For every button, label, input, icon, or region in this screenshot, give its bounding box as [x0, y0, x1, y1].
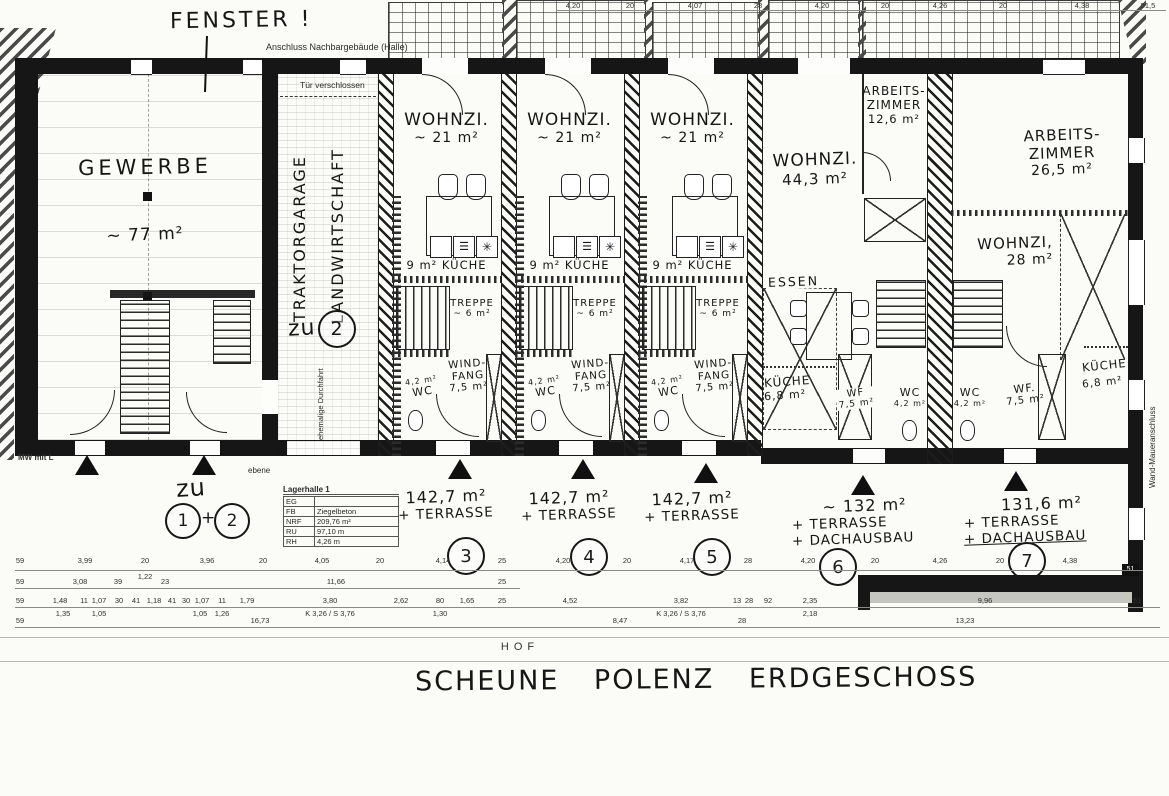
dimension-line [15, 570, 1143, 571]
dim-label: 4,20 [801, 556, 816, 565]
dim-label: 3,99 [78, 556, 93, 565]
dim-label: 20 [376, 556, 384, 565]
dim-label: 4,20 [815, 1, 830, 10]
dim-label: 20 [996, 556, 1004, 565]
dim-label: 13,23 [956, 616, 975, 625]
dim-label: 51 [1133, 596, 1141, 605]
dim-label: 1,07 [92, 596, 107, 605]
dim-label: 1,26 [215, 609, 230, 618]
dim-label: 9,96 [978, 596, 993, 605]
dim-label: 3,82 [674, 596, 689, 605]
dim-label: 20 [259, 556, 267, 565]
dim-label: 1,22 [138, 572, 153, 581]
dim-label: 25 [498, 577, 506, 586]
dim-label: 4,20 [566, 1, 581, 10]
dim-label: 4,26 [933, 556, 948, 565]
dim-label: 20 [141, 556, 149, 565]
dim-label: 4,26 [933, 1, 948, 10]
dimension-line [15, 607, 1160, 608]
dim-label: K 3,26 / S 3,76 [305, 609, 355, 618]
dim-label: 1,05 [193, 609, 208, 618]
dim-label: 41 [168, 596, 176, 605]
dim-label: K 3,26 / S 3,76 [656, 609, 706, 618]
dim-label: 30 [115, 596, 123, 605]
dim-label: 1,18 [147, 596, 162, 605]
dimension-line [15, 588, 520, 589]
dim-label: 20 [871, 556, 879, 565]
dim-label: 20 [623, 556, 631, 565]
dim-label: 11 [218, 596, 226, 605]
dim-label: 4,52 [563, 596, 578, 605]
dim-label: 4,38 [1063, 556, 1078, 565]
floor-plan-sheet: FENSTER ! Anschluss Nachbargebäude (Hall… [0, 0, 1169, 796]
dim-label: 1,79 [240, 596, 255, 605]
dim-label: 28 [744, 556, 752, 565]
dim-label: 11,66 [327, 577, 345, 586]
dim-label: 3,08 [73, 577, 88, 586]
dimension-line [556, 10, 1166, 11]
dim-label: 2,62 [394, 596, 409, 605]
dimension-line [15, 627, 1160, 628]
dim-label: 13 [733, 596, 741, 605]
dim-label: 59 [16, 596, 24, 605]
dim-label: 25 [498, 556, 506, 565]
dim-label: 28 [738, 616, 746, 625]
dim-label: 80 [436, 596, 444, 605]
dim-label: 20 [999, 1, 1007, 10]
dim-label: 20 [626, 1, 634, 10]
dim-label: 23 [161, 577, 169, 586]
dim-label: 11 [80, 596, 88, 605]
dim-label: 59 [16, 556, 24, 565]
dim-label: 28 [745, 596, 753, 605]
dim-label: 4,20 [556, 556, 571, 565]
dim-label: 4,05 [315, 556, 330, 565]
dim-label: 1,07 [195, 596, 210, 605]
dim-label: 20 [881, 1, 889, 10]
dim-label: 59 [16, 577, 24, 586]
dim-label: 1,65 [460, 596, 475, 605]
dim-label: 1,35 [56, 609, 71, 618]
dim-label: 51,5 [1141, 1, 1156, 10]
dim-label: 25 [498, 596, 506, 605]
dim-label: 4,07 [688, 1, 703, 10]
dim-label: 4,38 [1075, 1, 1090, 10]
hof-label: HOF [430, 641, 610, 653]
dim-label: 4,14 [436, 556, 451, 565]
dim-label: 16,73 [251, 616, 270, 625]
dim-label: 39 [114, 577, 122, 586]
dim-label: 1,05 [92, 609, 107, 618]
dim-label: 92 [764, 596, 772, 605]
dim-label: 59 [16, 616, 24, 625]
dim-label: 41 [132, 596, 140, 605]
dim-label: 28 [754, 1, 762, 10]
dim-label: 8,47 [613, 616, 628, 625]
dim-label: 2,18 [803, 609, 818, 618]
dim-label: 4,17 [680, 556, 695, 565]
dim-label: 3,80 [323, 596, 338, 605]
dim-label: 30 [182, 596, 190, 605]
dim-label: 3,96 [200, 556, 215, 565]
dim-label: 1,30 [433, 609, 448, 618]
sheet-title: SCHEUNE POLENZ ERDGESCHOSS [415, 662, 978, 698]
dim-label: 1,48 [53, 596, 68, 605]
dim-label: 2,35 [803, 596, 818, 605]
